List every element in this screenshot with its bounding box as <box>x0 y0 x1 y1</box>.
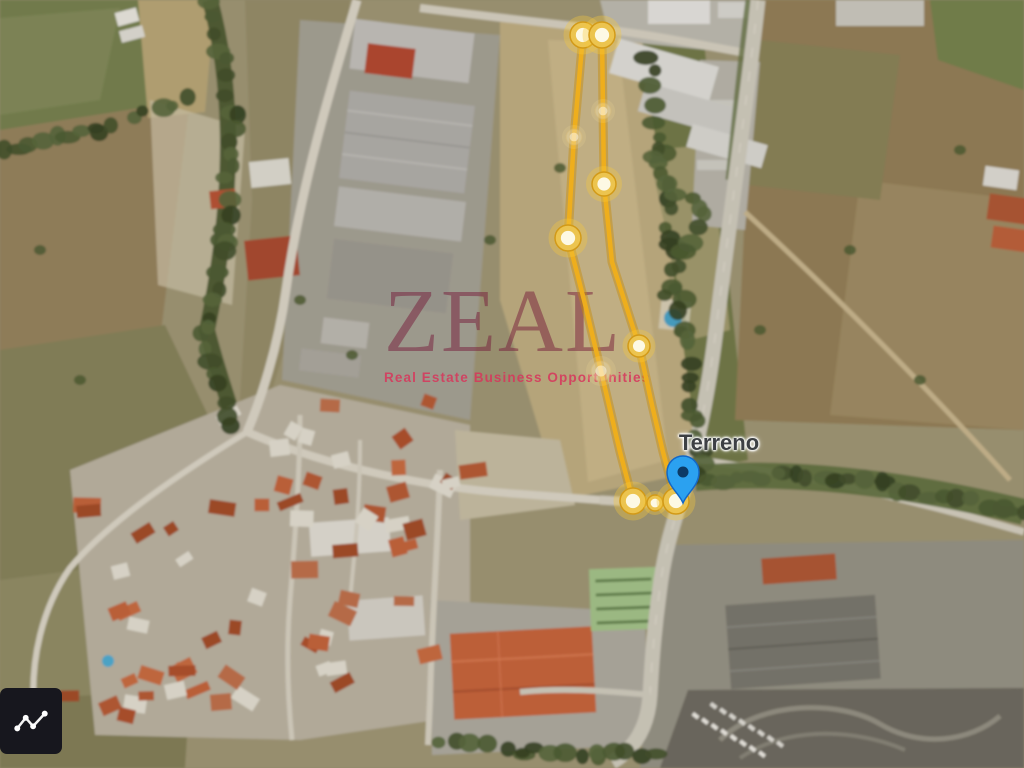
satellite-imagery <box>0 0 1024 768</box>
polyline-draw-icon <box>12 702 50 740</box>
map-label: Terreno <box>679 430 759 456</box>
map-viewport[interactable]: ZEAL Real Estate Business Opportunities … <box>0 0 1024 768</box>
polyline-tool-button[interactable] <box>0 688 62 754</box>
